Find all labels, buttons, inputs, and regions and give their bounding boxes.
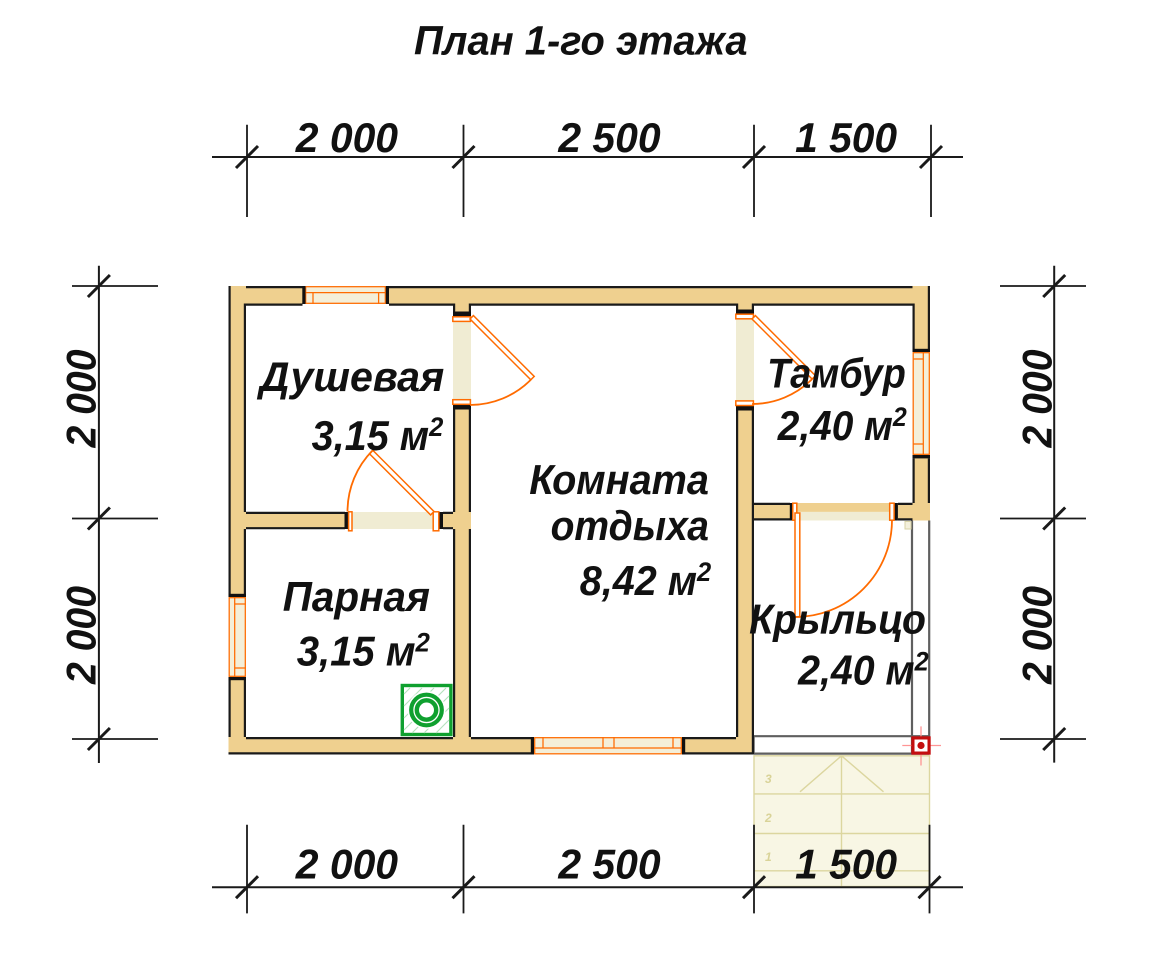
svg-text:2 000: 2 000 — [295, 114, 398, 161]
svg-text:2 500: 2 500 — [557, 841, 660, 888]
svg-text:2,40 м2: 2,40 м2 — [797, 646, 929, 693]
svg-text:отдыха: отдыха — [551, 502, 709, 549]
svg-text:1 500: 1 500 — [795, 114, 897, 161]
svg-text:2 500: 2 500 — [557, 114, 660, 161]
svg-text:2,40 м2: 2,40 м2 — [777, 402, 907, 449]
svg-text:2 000: 2 000 — [295, 841, 398, 888]
svg-text:2: 2 — [764, 811, 772, 825]
svg-text:2 000: 2 000 — [1013, 350, 1060, 449]
svg-text:3: 3 — [765, 772, 772, 786]
svg-text:3,15 м2: 3,15 м2 — [297, 627, 430, 674]
svg-text:3,15 м2: 3,15 м2 — [312, 412, 444, 459]
svg-text:Тамбур: Тамбур — [767, 350, 906, 397]
svg-text:Крыльцо: Крыльцо — [749, 596, 926, 643]
svg-text:Душевая: Душевая — [257, 353, 445, 400]
svg-text:План 1-го этажа: План 1-го этажа — [414, 18, 748, 64]
svg-text:1: 1 — [765, 850, 772, 864]
svg-text:Комната: Комната — [529, 456, 709, 503]
svg-text:8,42 м2: 8,42 м2 — [580, 557, 711, 604]
svg-text:2 000: 2 000 — [57, 350, 104, 449]
svg-text:2 000: 2 000 — [1013, 586, 1060, 685]
svg-text:Парная: Парная — [283, 573, 430, 620]
svg-text:1 500: 1 500 — [795, 841, 897, 888]
svg-text:2 000: 2 000 — [57, 586, 104, 685]
